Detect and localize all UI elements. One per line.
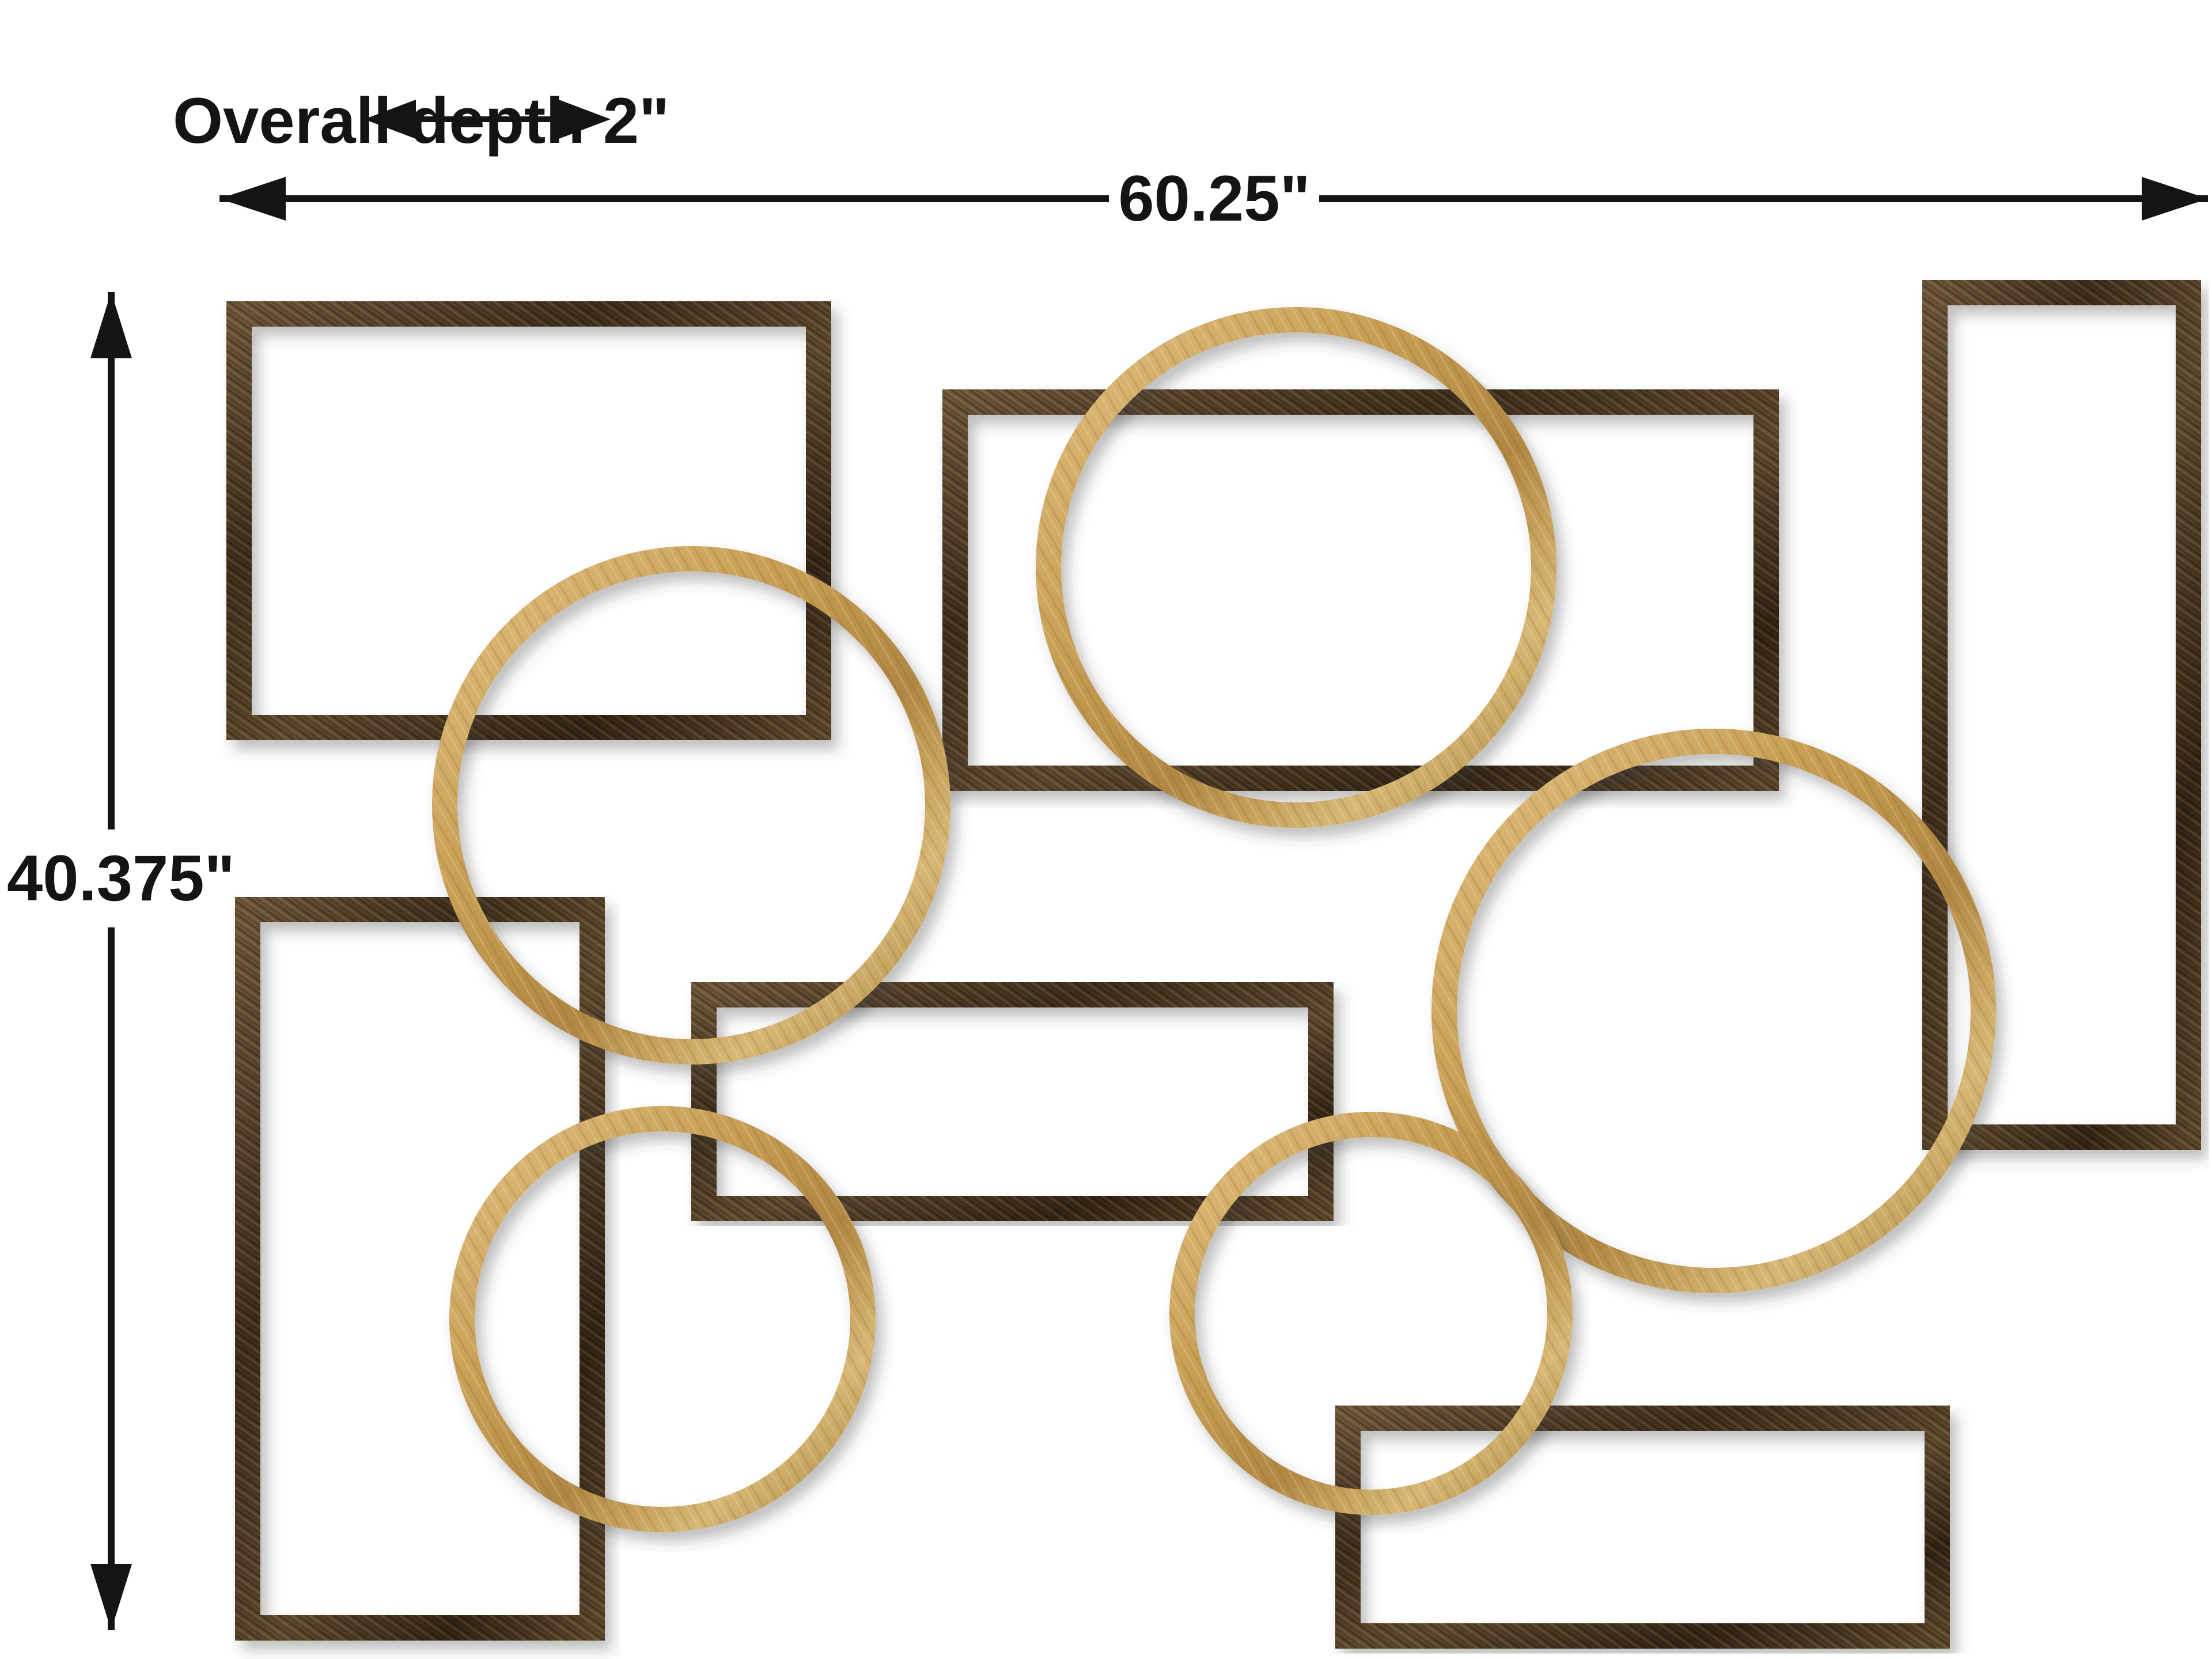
gold-circle-bottom-left-texture: [462, 1119, 863, 1520]
diagram-drawing: Overall depth 2" 60.25" 40.375": [0, 0, 2212, 1659]
gold-circle-mid-left: [445, 559, 938, 1052]
width-arrow-right-icon: [2142, 177, 2208, 221]
height-arrow-up-icon: [90, 292, 132, 358]
gold-circle-mid-left-texture: [445, 559, 938, 1052]
gold-circle-bottom-left: [462, 1119, 863, 1520]
bronze-rectangle-bottom-right-texture: [1348, 1418, 1937, 1636]
width-dimension-label: 60.25": [1118, 162, 1310, 234]
gold-circle-bottom-center-texture: [1182, 1124, 1560, 1502]
bronze-rectangle-top-left: [239, 314, 819, 728]
width-arrow-left-icon: [219, 177, 286, 221]
bronze-rectangle-bottom-right: [1348, 1418, 1937, 1636]
product-dimension-diagram: Overall depth 2" 60.25" 40.375": [0, 0, 2212, 1659]
height-dimension-label: 40.375": [7, 842, 235, 914]
bronze-rectangle-top-left-texture: [239, 314, 819, 728]
gold-circle-bottom-center: [1182, 1124, 1560, 1502]
bronze-rectangle-bottom-left-tall: [248, 910, 592, 1628]
wall-art-sculpture: [239, 293, 2188, 1636]
bronze-rectangle-bottom-left-tall-texture: [248, 910, 592, 1628]
height-arrow-down-icon: [90, 1564, 132, 1630]
